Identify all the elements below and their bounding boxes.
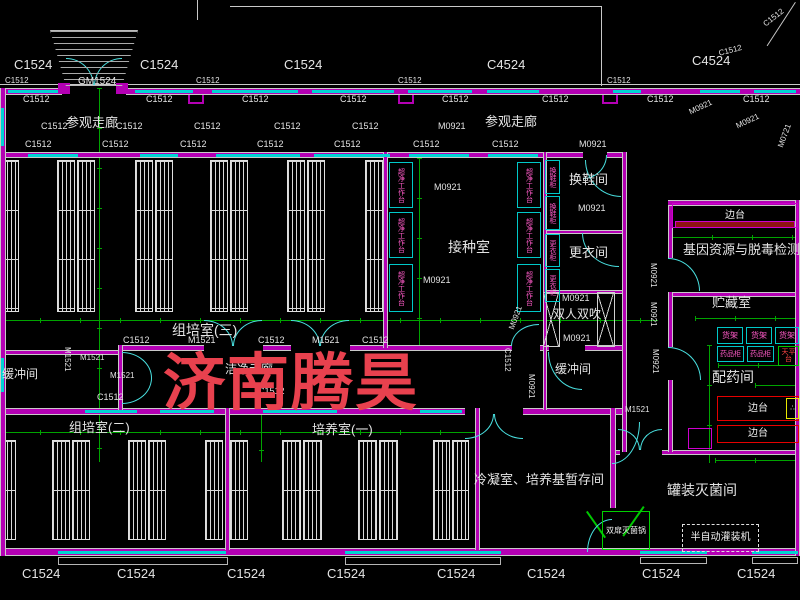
culture-rack — [155, 160, 173, 312]
reference-line — [230, 6, 601, 7]
medicine-cabinet: 药品柜 — [717, 346, 744, 362]
filling-machine: 半自动灌装机 — [682, 524, 759, 552]
shoe-cabinet: 换鞋柜 — [545, 196, 560, 230]
dimension-line — [695, 316, 800, 321]
side-bench: 边台 — [717, 425, 799, 443]
window — [216, 154, 300, 157]
floor-plan-canvas: 济南腾昊 超净工作台超净工作台超净工作台超净工作台超净工作台超净工作台换鞋柜换鞋… — [0, 0, 800, 600]
text-label: C1512 — [334, 140, 361, 149]
text-label: C1512 — [116, 122, 143, 131]
window — [312, 90, 394, 93]
text-label: 基因资源与脱毒检测室 — [683, 243, 800, 256]
text-label: 培养室(一) — [312, 423, 373, 436]
culture-rack — [205, 440, 223, 540]
wardrobe: 更衣柜 — [545, 269, 560, 302]
text-label: C1512 — [607, 77, 631, 85]
text-label: 罐装灭菌间 — [667, 483, 737, 497]
text-label: C1512 — [242, 95, 269, 104]
window — [409, 154, 469, 157]
text-label: C1512 — [25, 140, 52, 149]
text-label: 更衣间 — [569, 246, 608, 259]
clean-bench: 超净工作台 — [517, 162, 541, 208]
text-label: C1512 — [718, 44, 743, 58]
text-label: C1524 — [14, 58, 52, 71]
wardrobe: 更衣柜 — [545, 234, 560, 267]
door-arc — [640, 429, 662, 450]
medicine-cabinet: 药品柜 — [747, 346, 774, 362]
text-label: C1512 — [503, 348, 511, 372]
text-label: M1521 — [110, 372, 134, 380]
window — [408, 90, 472, 93]
text-label: 换鞋间 — [569, 173, 608, 186]
text-label: C1512 — [398, 77, 422, 85]
reference-line — [197, 0, 198, 20]
dimension-line — [755, 383, 800, 388]
balance-table: 天平台 — [778, 346, 799, 366]
text-label: C1512 — [23, 95, 50, 104]
culture-rack — [52, 440, 70, 540]
window — [488, 154, 538, 157]
text-label: M0921 — [649, 263, 657, 287]
text-label: C1512 — [762, 7, 786, 28]
text-label: M0921 — [578, 204, 606, 213]
text-label: M0921 — [527, 374, 535, 398]
watermark: 济南腾昊 — [163, 332, 419, 422]
culture-rack — [72, 440, 90, 540]
text-label: M0721 — [777, 123, 793, 149]
culture-rack — [77, 160, 95, 312]
text-label: C1512 — [492, 140, 519, 149]
text-label: C1524 — [737, 567, 775, 580]
shoe-cabinet: 换鞋柜 — [545, 160, 560, 194]
text-label: C1512 — [196, 77, 220, 85]
dimension-line — [417, 158, 422, 346]
window — [420, 410, 462, 413]
window — [487, 90, 539, 93]
text-label: C1512 — [180, 140, 207, 149]
wall — [0, 88, 6, 556]
utility-box — [688, 428, 712, 449]
door-arc — [668, 258, 700, 291]
window-sill — [752, 557, 798, 564]
text-label: M0921 — [579, 140, 607, 149]
text-label: M0921 — [735, 113, 761, 131]
text-label: C1524 — [527, 567, 565, 580]
clean-bench: 超净工作台 — [389, 162, 413, 208]
text-label: C1524 — [227, 567, 265, 580]
door-notch — [398, 95, 414, 104]
door-arc — [465, 414, 494, 439]
text-label: 缓冲间 — [555, 363, 591, 375]
clean-bench: 超净工作台 — [517, 212, 541, 258]
text-label: M0921 — [438, 122, 466, 131]
culture-rack — [307, 160, 325, 312]
culture-rack — [287, 160, 305, 312]
text-label: C1512 — [352, 122, 379, 131]
text-label: M0921 — [423, 276, 451, 285]
window — [135, 90, 193, 93]
culture-rack — [282, 440, 301, 540]
text-label: 缓冲间 — [2, 368, 38, 380]
text-label: M0921 — [651, 349, 659, 373]
culture-rack — [303, 440, 322, 540]
culture-rack — [230, 160, 248, 312]
reference-line — [601, 6, 602, 86]
wall — [383, 152, 388, 348]
text-label: M1521 — [625, 406, 649, 414]
wall — [662, 450, 800, 455]
text-label: C1524 — [284, 58, 322, 71]
text-label: C1524 — [140, 58, 178, 71]
text-label: C1512 — [647, 95, 674, 104]
shelf-rack: 货架 — [746, 327, 772, 344]
dimension-line — [672, 235, 800, 240]
text-label: M0921 — [649, 302, 657, 326]
text-label: 接种室 — [448, 240, 490, 254]
culture-rack — [210, 160, 228, 312]
culture-rack — [128, 440, 146, 540]
text-label: C1512 — [413, 140, 440, 149]
text-label: 参观走廊 — [485, 115, 537, 128]
text-label: C1512 — [102, 140, 129, 149]
text-label: C1512 — [97, 393, 124, 402]
culture-rack — [57, 160, 75, 312]
window-sill — [640, 557, 707, 564]
text-label: C1512 — [442, 95, 469, 104]
text-label: C4524 — [487, 58, 525, 71]
window — [314, 154, 390, 157]
text-label: C1512 — [146, 95, 173, 104]
clean-bench: 超净工作台 — [389, 212, 413, 258]
window — [700, 90, 740, 93]
text-label: M0921 — [562, 294, 590, 303]
text-label: C1512 — [340, 95, 367, 104]
window-sill — [58, 557, 228, 565]
culture-rack — [379, 440, 398, 540]
sterilizer: 双扉灭菌锅 — [602, 511, 650, 550]
text-label: 冷凝室、培养基暂存间 — [474, 473, 604, 486]
text-label: C1512 — [743, 95, 770, 104]
culture-rack — [135, 160, 153, 312]
window — [212, 90, 298, 93]
window — [8, 90, 58, 93]
wall — [668, 380, 673, 452]
text-label: C1512 — [5, 77, 29, 85]
text-label: 组培室(二) — [69, 421, 130, 434]
culture-rack — [148, 440, 166, 540]
text-label: 贮藏室 — [712, 296, 751, 309]
window — [1, 108, 4, 146]
door-arc — [122, 378, 152, 404]
text-label: GM1524 — [78, 77, 116, 87]
wall — [668, 292, 673, 347]
window — [613, 90, 641, 93]
window — [85, 410, 137, 413]
wall — [225, 408, 230, 550]
text-label: C1524 — [117, 567, 155, 580]
text-label: 配药间 — [712, 370, 754, 384]
culture-rack — [365, 160, 383, 312]
window-sill — [345, 557, 501, 565]
window — [754, 90, 796, 93]
text-label: 参观走廊 — [66, 116, 118, 129]
window — [28, 154, 78, 157]
window — [140, 154, 178, 157]
text-label: C1512 — [123, 336, 150, 345]
door-notch — [188, 95, 204, 104]
clean-bench: 超净工作台 — [389, 264, 413, 312]
window — [58, 551, 226, 554]
text-label: C1524 — [327, 567, 365, 580]
text-label: M0921 — [688, 99, 714, 117]
dimension-line — [715, 458, 800, 463]
text-label: C1512 — [257, 140, 284, 149]
culture-rack — [433, 440, 450, 540]
culture-rack — [452, 440, 469, 540]
text-label: C1524 — [437, 567, 475, 580]
sink: ∴ — [786, 398, 799, 419]
culture-rack — [230, 440, 248, 540]
text-label: C1512 — [542, 95, 569, 104]
door-arc — [668, 347, 701, 380]
text-label: C1512 — [274, 122, 301, 131]
text-label: C1512 — [194, 122, 221, 131]
culture-rack — [358, 440, 377, 540]
text-label: M1521 — [80, 354, 104, 362]
text-label: 双人双吹 — [553, 308, 601, 320]
text-label: M0921 — [434, 183, 462, 192]
side-bench-top — [675, 221, 795, 228]
door-arc — [494, 414, 523, 439]
shelf-rack: 货架 — [717, 327, 743, 344]
shelf-rack: 货架 — [775, 327, 799, 344]
text-label: M1521 — [63, 347, 71, 371]
text-label: M0921 — [563, 334, 591, 343]
text-label: C1524 — [642, 567, 680, 580]
window — [345, 551, 501, 554]
clean-bench: 超净工作台 — [517, 264, 541, 312]
door-arc — [612, 422, 640, 464]
door-notch — [602, 95, 618, 104]
text-label: C1524 — [22, 567, 60, 580]
text-label: C1512 — [41, 122, 68, 131]
